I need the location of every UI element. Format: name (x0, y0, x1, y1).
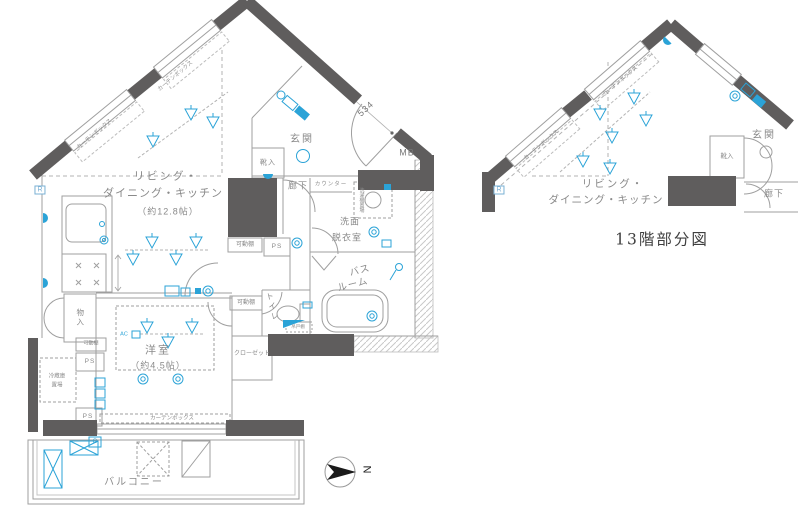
ldk-area-label: （約12.8帖） (137, 208, 199, 217)
senmen-label-line1: 洗面 (340, 218, 360, 227)
ldk-label-partial-line1: リビング・ (582, 179, 645, 190)
rouka-label: 廊下 (288, 182, 308, 191)
ps-label-2: PS (85, 359, 96, 366)
partial-plan-caption: 13階部分図 (615, 232, 709, 248)
kadodana-label-3: 可動棚 (83, 342, 98, 347)
closet-label: クローゼット (234, 351, 270, 357)
genkan-label: 玄関 (290, 135, 314, 145)
yoshitsu-label: 洋室 (145, 346, 171, 357)
ps-label-1: PS (272, 244, 283, 251)
genkan-label-partial: 玄関 (752, 131, 776, 141)
tsuridana-label: 吊戸棚 (291, 325, 305, 330)
kutsuire-label: 靴入 (260, 160, 276, 167)
kadodana-label-2: 可動棚 (237, 300, 255, 306)
floorplan-page: リビング・ ダイニング・キッチン （約12.8帖） 玄関 靴入 MB 廊下 カウ… (0, 0, 800, 518)
reizoko-label-line1: 冷蔵庫 (49, 374, 66, 380)
ldk-label-partial-line2: ダイニング・キッチン (549, 195, 664, 206)
balcony-label: バルコニー (104, 478, 164, 488)
ps-label-3: PS (83, 414, 94, 421)
partial-windows (505, 41, 741, 178)
senmen-label-line2: 脱衣室 (332, 234, 362, 243)
floorplan-canvas (0, 0, 800, 518)
curtain-box-label-bottom: カーテンボックス (150, 416, 194, 422)
mb-label: MB (399, 149, 415, 158)
kutsuire-label-partial: 靴入 (721, 154, 734, 161)
compass-north-label: N (361, 466, 372, 475)
r-mark-partial: R (493, 186, 504, 195)
yoshitsu-area-label: （約4.5帖） (130, 362, 186, 371)
ac-outlet-label: AC (120, 332, 128, 338)
r-mark-main: R (34, 186, 45, 195)
ldk-label-line1: リビング・ (134, 172, 199, 183)
main-plan (28, 1, 438, 504)
reizoko-label-line2: 置場 (51, 383, 62, 389)
compass-icon (325, 457, 356, 487)
gas-outlet-label: G (93, 439, 98, 445)
counter-label: カウンター (315, 182, 348, 188)
kadodana-label-1: 可動棚 (236, 242, 254, 248)
ldk-label-line2: ダイニング・キッチン (103, 189, 223, 200)
partial-fixtures (577, 36, 766, 174)
balcony-area (28, 437, 304, 504)
main-fixtures (43, 91, 403, 409)
monoire-label: 物入 (76, 309, 84, 328)
rouka-label-partial: 廊下 (764, 190, 784, 199)
sentakuki-label: 洗濯機置場 (359, 188, 364, 213)
